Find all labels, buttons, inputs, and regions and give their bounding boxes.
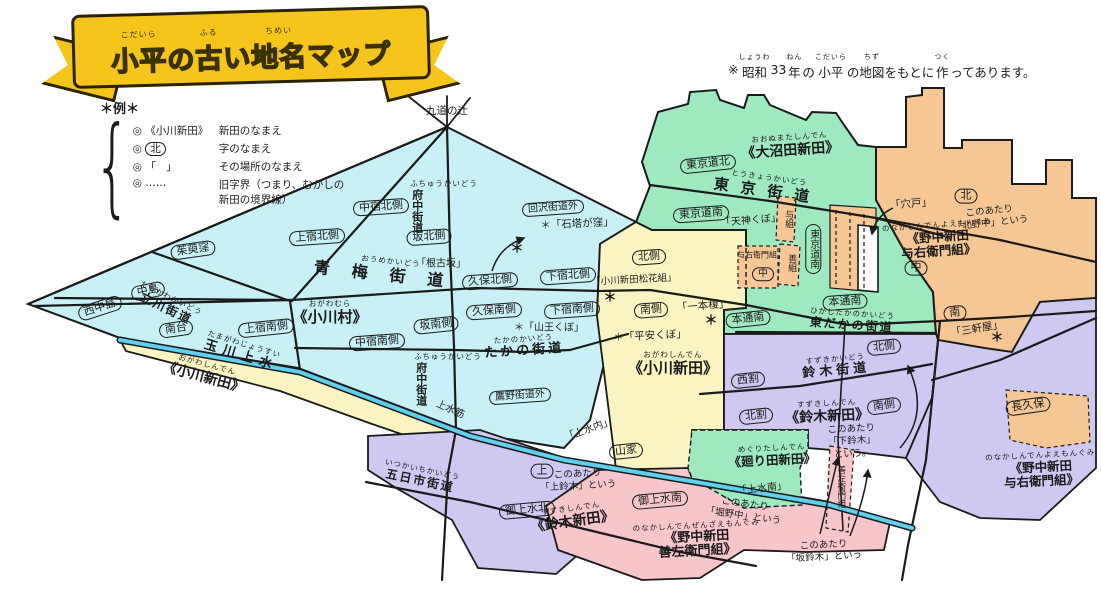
map-label: 本通南 bbox=[725, 309, 771, 328]
text-segment: マップ bbox=[306, 23, 391, 73]
map-label: ＊「平安くぼ」 bbox=[613, 328, 687, 344]
map-label: このあたり 「上鈴木」という bbox=[539, 467, 616, 496]
map-label: このあたり 「坂鈴木」という bbox=[785, 538, 862, 567]
legend-heading: ＊例＊ bbox=[100, 98, 400, 117]
map-label: めぐりたしんでん《廻り田新田》 bbox=[728, 442, 817, 469]
text-segment: ふる古 bbox=[194, 28, 223, 77]
map-label: 九道の辻 bbox=[426, 105, 468, 117]
map-label: 「一本榎」 bbox=[676, 298, 729, 315]
map-label: たちかわかいどう立川街道 bbox=[133, 280, 204, 330]
map-label: このあたり 「下鈴木」 という。 bbox=[827, 422, 876, 461]
star-marker: ＊ bbox=[704, 315, 717, 330]
map-label: 下宿北側 bbox=[540, 267, 597, 286]
map-label: 東京道南 bbox=[673, 205, 730, 224]
legend-symbol: ◎ 《小川新田》 bbox=[133, 123, 219, 138]
map-label: 久保南側 bbox=[466, 302, 523, 321]
map-label: 西割 bbox=[730, 371, 765, 389]
map-label: のなかしんでんよえもんぐみ《野中新田 与右衛門組》 bbox=[882, 218, 995, 263]
legend-desc: 旧字界（つまり、むかしの 新田の境界線） bbox=[219, 177, 345, 207]
map-label: 善組 bbox=[786, 254, 796, 272]
map-label: 中宿南側 bbox=[349, 333, 406, 352]
text-segment: しょうわ昭和 bbox=[738, 53, 770, 81]
text-segment: い bbox=[222, 27, 251, 76]
map-label: 「三軒屋」 bbox=[950, 319, 1004, 340]
text-segment: 33 bbox=[770, 53, 786, 77]
map-label: すずきしんでん《鈴木新田》 bbox=[529, 499, 616, 535]
map-label: 北側 bbox=[866, 338, 901, 356]
map-label: おがわしんでん《小川新田》 bbox=[628, 351, 718, 377]
map-label: 坂南側 bbox=[413, 315, 459, 334]
map-label: おおぬまたしんでん《大沼田新田》 bbox=[740, 130, 839, 161]
map-label: ふちゅうかいどう府中街道 bbox=[414, 353, 482, 406]
map-label: 回沢街道外 bbox=[522, 199, 585, 217]
map-label: 与組 bbox=[783, 210, 793, 228]
legend-item: ◎ 《小川新田》新田のなまえ bbox=[133, 123, 345, 138]
map-label: 「天神くぼ」 bbox=[721, 213, 782, 230]
text-segment: こだいら小平 bbox=[815, 53, 847, 81]
map-label: おがわしんでん《小川新田》 bbox=[161, 350, 249, 395]
map-label: 北 bbox=[955, 189, 978, 204]
map-label: 北割 bbox=[738, 407, 773, 425]
map-label: 東京道南 bbox=[805, 224, 821, 274]
map-label: 「小川新田松花組」 bbox=[591, 273, 677, 288]
map-label: とうきょうかいどう東京街道 bbox=[713, 167, 824, 208]
map-label: 坂北側 bbox=[406, 228, 452, 246]
map-label: すずきかいどう鈴木街道 bbox=[801, 352, 871, 381]
map-label: 中島 bbox=[130, 280, 166, 301]
map-label: 南台 bbox=[158, 319, 194, 338]
map-label: このあたり 「堀野中」という bbox=[705, 493, 784, 528]
legend-item: ◎ 「 」その場所のなまえ bbox=[133, 159, 345, 174]
map-label: 御上水北 bbox=[498, 500, 555, 519]
map-label: 茱萸窪 bbox=[170, 240, 217, 261]
map-label: 中 bbox=[905, 261, 928, 276]
text-segment: ちめい地名 bbox=[250, 25, 307, 75]
map-label: 長久保 bbox=[1005, 396, 1052, 417]
map-label: ふちゅうかいどう府中街道 bbox=[410, 180, 478, 233]
text-segment: の bbox=[847, 53, 860, 81]
banner-band: こだいら小平 のふる古 いちめい地名 マップ bbox=[71, 5, 431, 89]
text-segment: ちず地図 bbox=[859, 53, 884, 81]
map-label: おうめかいどう青梅街道 bbox=[313, 250, 467, 293]
map-label: 南側 bbox=[866, 396, 902, 415]
map-label: 上宿北側 bbox=[289, 228, 346, 247]
map-label: 御上水南 bbox=[631, 490, 688, 509]
source-note: ※しょうわ昭和 33ねん年 のこだいら小平 のちず地図 をもとにつく作 ってあり… bbox=[728, 44, 1035, 81]
text-segment: ってあります。 bbox=[950, 53, 1035, 81]
map-label: たかのかいどうたかの街道 bbox=[483, 333, 564, 362]
legend-item: ◎ ……旧字界（つまり、むかしの 新田の境界線） bbox=[133, 177, 345, 207]
map-label: 「上水内」 bbox=[564, 416, 615, 444]
text-segment: の bbox=[166, 29, 195, 78]
map-label: ひがしたかのかいどう東だかの街道 bbox=[809, 307, 895, 335]
map-label: 中 bbox=[752, 267, 774, 281]
map-label: のなかしんでんぜんざえもんぐみ《野中新田 善左衛門組》 bbox=[632, 519, 761, 564]
map-label: ＊「石塔が窪」 bbox=[540, 216, 614, 232]
text-segment: ねん年 bbox=[786, 53, 802, 81]
map-label: 上 bbox=[531, 464, 554, 479]
text-segment: つく作 bbox=[934, 53, 950, 81]
map-label: いつかいちかいどう五日市街道 bbox=[381, 458, 460, 496]
map-title-text: こだいら小平 のふる古 いちめい地名 マップ bbox=[110, 15, 390, 42]
map-label: 与右衛門組 bbox=[737, 250, 777, 259]
star-marker: ＊ bbox=[603, 292, 616, 307]
legend-desc: 新田のなまえ bbox=[219, 123, 282, 138]
star-marker: ＊ bbox=[990, 332, 1003, 347]
map-label: 西中島 bbox=[76, 294, 123, 322]
map-label: 上宿南側 bbox=[237, 318, 294, 338]
map-label: すずきしんでん《鈴木新田》 bbox=[784, 398, 869, 427]
text-segment: ※ bbox=[728, 53, 738, 77]
map-label: 山家 bbox=[608, 442, 643, 460]
map-label: 東京道北 bbox=[679, 154, 736, 174]
map-label: 南側 bbox=[634, 302, 669, 319]
map-label: 「上水南」 bbox=[737, 481, 788, 498]
map-label: たまがわじょうすい玉川上水 bbox=[202, 330, 282, 375]
legend-items: ◎ 《小川新田》新田のなまえ◎ 北字のなまえ◎ 「 」その場所のなまえ◎ ……旧… bbox=[133, 119, 345, 221]
map-label: 本通南 bbox=[822, 293, 868, 311]
map-label: おがわむら《小川村》 bbox=[292, 300, 367, 326]
legend-symbol: ◎ 北 bbox=[133, 141, 219, 156]
map-title: こだいら小平 のふる古 いちめい地名 マップ bbox=[110, 15, 391, 79]
map-label: 鷹野街道外 bbox=[489, 387, 552, 405]
legend-brace: { bbox=[93, 113, 131, 221]
legend-desc: 字のなまえ bbox=[219, 141, 272, 156]
map-label: 善左衛門組 bbox=[835, 466, 845, 509]
star-marker: ＊ bbox=[510, 243, 523, 258]
legend: ＊例＊ { ◎ 《小川新田》新田のなまえ◎ 北字のなまえ◎ 「 」その場所のなま… bbox=[100, 98, 400, 221]
map-label: のなかしんでんよえもんぐみ《野中新田 与右衛門組》 bbox=[985, 449, 1097, 492]
map-label: このあたり 「北野中」という bbox=[951, 202, 1029, 234]
legend-symbol: ◎ 「 」 bbox=[133, 159, 219, 174]
map-label: 上水筋 bbox=[434, 399, 466, 422]
title-banner: こだいら小平 のふる古 いちめい地名 マップ bbox=[46, 4, 456, 100]
map-canvas: 九道の辻西中島中島たちかわかいどう立川街道南台茱萸窪上宿南側中宿北側上宿北側坂北… bbox=[0, 0, 1101, 600]
map-label: 下宿南側 bbox=[544, 301, 601, 320]
text-segment: こだいら小平 bbox=[110, 29, 167, 79]
map-label: 南 bbox=[943, 305, 967, 322]
note-text: ※しょうわ昭和 33ねん年 のこだいら小平 のちず地図 をもとにつく作 ってあり… bbox=[728, 44, 1035, 63]
map-label: 久保北側 bbox=[462, 272, 519, 291]
legend-item: ◎ 北字のなまえ bbox=[133, 141, 345, 156]
map-label: 北側 bbox=[632, 249, 667, 266]
map-label: ＊「山王くぼ」 bbox=[514, 322, 584, 334]
text-segment: の bbox=[802, 53, 815, 81]
text-segment: をもとに bbox=[884, 53, 934, 81]
map-label: 「根古坂」 bbox=[416, 258, 466, 270]
map-label: 「穴戸」 bbox=[890, 196, 933, 212]
legend-symbol: ◎ …… bbox=[133, 177, 219, 189]
legend-desc: その場所のなまえ bbox=[219, 159, 303, 174]
